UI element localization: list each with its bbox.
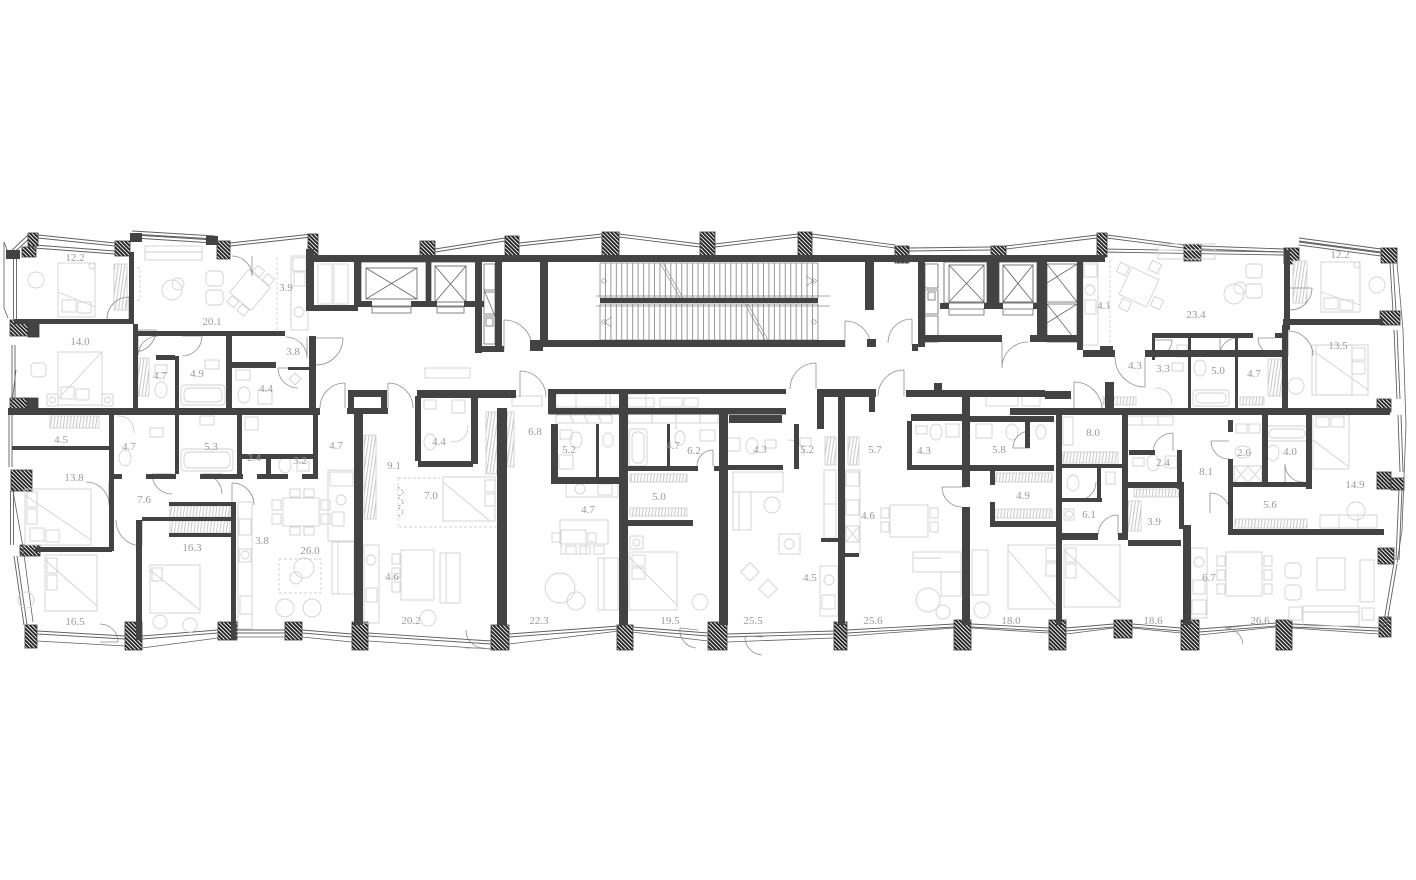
svg-text:5.0: 5.0 (1211, 365, 1225, 377)
svg-text:4.6: 4.6 (385, 571, 399, 583)
svg-text:4.5: 4.5 (803, 572, 817, 584)
svg-text:4.1: 4.1 (1097, 300, 1111, 312)
svg-text:4.9: 4.9 (190, 368, 204, 380)
svg-text:4.4: 4.4 (432, 436, 446, 448)
svg-text:4.0: 4.0 (1283, 446, 1297, 458)
svg-text:4.9: 4.9 (1016, 490, 1030, 502)
svg-text:2.6: 2.6 (1237, 447, 1251, 459)
svg-text:3.3: 3.3 (1156, 363, 1170, 375)
svg-text:4.6: 4.6 (861, 510, 875, 522)
svg-text:18.6: 18.6 (1143, 615, 1163, 627)
svg-text:3.8: 3.8 (286, 346, 300, 358)
svg-text:4.3: 4.3 (753, 444, 767, 456)
svg-text:5.0: 5.0 (652, 491, 666, 503)
svg-text:9.1: 9.1 (387, 460, 401, 472)
svg-text:3.9: 3.9 (1147, 516, 1161, 528)
svg-text:25.5: 25.5 (743, 615, 763, 627)
svg-text:20.2: 20.2 (401, 615, 420, 627)
svg-text:5.2: 5.2 (800, 444, 814, 456)
svg-text:4.7: 4.7 (666, 440, 680, 452)
svg-text:14.9: 14.9 (1345, 479, 1365, 491)
svg-text:6.2: 6.2 (687, 445, 701, 457)
svg-text:6.7: 6.7 (1202, 572, 1216, 584)
svg-text:7.0: 7.0 (424, 490, 438, 502)
svg-text:5.2: 5.2 (562, 444, 576, 456)
svg-text:4.5: 4.5 (54, 434, 68, 446)
svg-text:13.5: 13.5 (1328, 340, 1348, 352)
svg-text:4.4: 4.4 (259, 383, 273, 395)
svg-text:16.5: 16.5 (65, 616, 85, 628)
svg-text:18.0: 18.0 (1001, 615, 1021, 627)
svg-text:3.8: 3.8 (255, 535, 269, 547)
svg-text:4.7: 4.7 (153, 370, 167, 382)
svg-text:5.6: 5.6 (1263, 499, 1277, 511)
svg-text:13.8: 13.8 (64, 472, 84, 484)
svg-text:19.5: 19.5 (660, 615, 680, 627)
svg-text:4.7: 4.7 (122, 441, 136, 453)
svg-text:6.1: 6.1 (1082, 509, 1096, 521)
svg-text:16.3: 16.3 (182, 542, 202, 554)
svg-text:20.1: 20.1 (202, 316, 221, 328)
svg-text:12.2: 12.2 (1330, 249, 1349, 261)
svg-text:25.6: 25.6 (863, 615, 883, 627)
svg-text:12.2: 12.2 (65, 252, 84, 264)
svg-text:26.0: 26.0 (300, 545, 320, 557)
svg-text:2.4: 2.4 (247, 452, 261, 464)
svg-text:2.4: 2.4 (1156, 457, 1170, 469)
svg-text:4.7: 4.7 (1247, 368, 1261, 380)
svg-text:26.6: 26.6 (1250, 615, 1270, 627)
svg-text:4.3: 4.3 (917, 445, 931, 457)
svg-text:22.3: 22.3 (529, 615, 549, 627)
svg-text:5.3: 5.3 (204, 441, 218, 453)
svg-text:3.9: 3.9 (279, 282, 293, 294)
svg-text:4.3: 4.3 (1128, 360, 1142, 372)
svg-text:5.7: 5.7 (868, 444, 882, 456)
svg-text:5.8: 5.8 (992, 444, 1006, 456)
svg-text:8.1: 8.1 (1199, 466, 1213, 478)
svg-text:8.0: 8.0 (1086, 427, 1100, 439)
svg-text:4.7: 4.7 (581, 504, 595, 516)
svg-text:23.4: 23.4 (1186, 309, 1206, 321)
svg-text:6.8: 6.8 (528, 426, 542, 438)
svg-text:7.6: 7.6 (137, 494, 151, 506)
svg-text:14.0: 14.0 (70, 336, 90, 348)
svg-text:4.7: 4.7 (329, 440, 343, 452)
svg-text:3.2: 3.2 (293, 455, 307, 467)
